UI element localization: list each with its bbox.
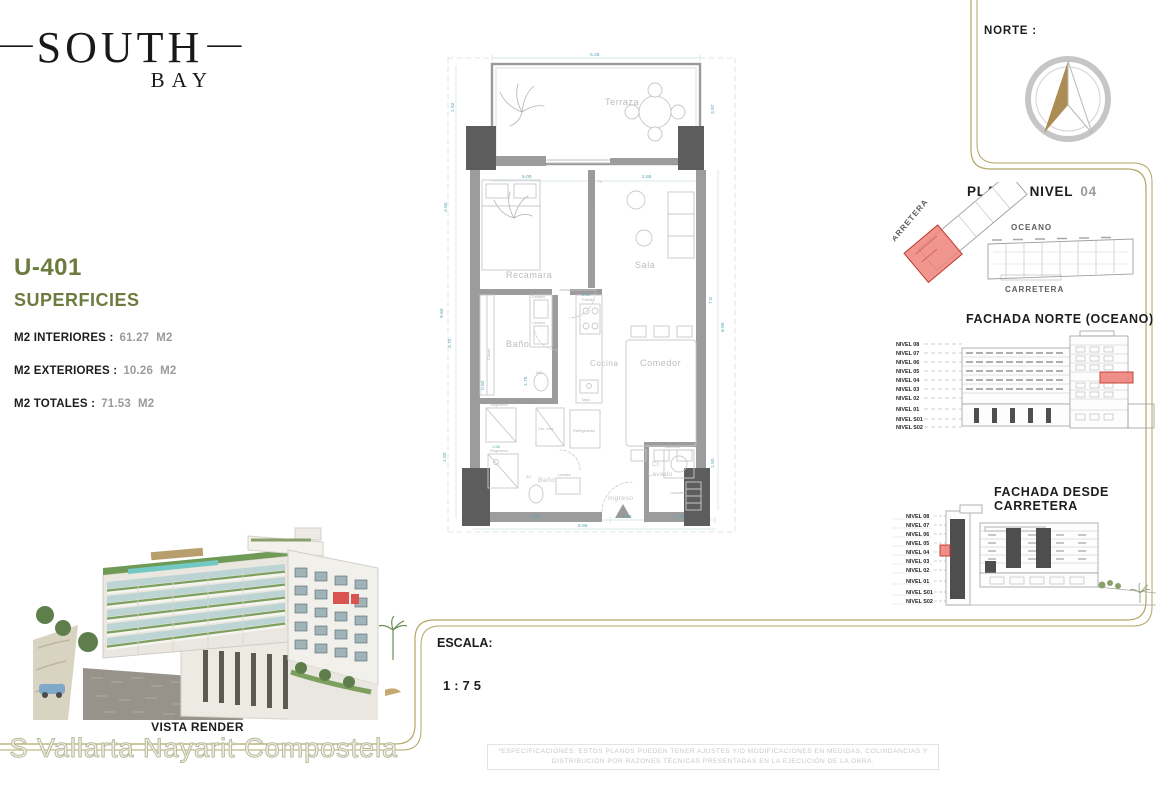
- m2-totales-value: 71.53: [101, 398, 131, 410]
- m2-exteriores-row: M2 EXTERIORES :10.26M2: [14, 365, 244, 377]
- fn-nivel-01: NIVEL 01: [896, 407, 919, 413]
- dim-l2: 4.50: [443, 202, 449, 212]
- bano1-label: Baño: [506, 339, 529, 349]
- dim-r2: 7.6: [708, 297, 714, 304]
- dim-158: 1.58: [492, 444, 501, 449]
- logo-dash-right: —: [207, 27, 241, 61]
- fn-nivel-08: NIVEL 08: [896, 342, 919, 348]
- norte-label: NORTE :: [984, 25, 1037, 37]
- dim-top: 5.28: [590, 52, 600, 58]
- parrilla-label: Parrilla: [582, 297, 595, 302]
- fn-nivel-s01: NIVEL S01: [896, 417, 923, 423]
- dim-parrilla: 0.90: [582, 292, 591, 297]
- compass-icon: [1018, 47, 1118, 147]
- m2-totales-unit: M2: [138, 398, 154, 410]
- m2-totales-label: M2 TOTALES :: [14, 398, 95, 410]
- compass-needle-outline: [1068, 61, 1092, 133]
- wc1-label: WC: [536, 370, 543, 375]
- m2-exteriores-label: M2 EXTERIORES :: [14, 365, 117, 377]
- dim-b3: 1.26: [675, 514, 685, 520]
- lavabo2-label: Lavabo: [532, 320, 546, 325]
- building-strip: [988, 238, 1133, 281]
- kitchen-fixtures: [576, 295, 602, 403]
- fachada-norte-elevation: NIVEL 08 NIVEL 07 NIVEL 06 NIVEL 05 NIVE…: [888, 330, 1160, 432]
- plan-sheet: — SOUTH — BAY U-401 SUPERFICIES M2 INTER…: [0, 0, 1170, 785]
- fn-nivel-04: NIVEL 04: [896, 378, 919, 384]
- cto-inst-label: Cto. Inst.: [538, 426, 554, 431]
- lavabo1-label: Lavabo: [532, 294, 546, 299]
- building-render-illustration: [33, 520, 408, 720]
- m2-interiores-value: 61.27: [119, 332, 149, 344]
- bano2-label: Baño: [538, 477, 555, 484]
- lav-sec-label: Lav./Sec.: [665, 444, 681, 449]
- dim-175: 1.75: [523, 376, 529, 386]
- fachada-carretera-highlight: [940, 545, 950, 556]
- regadera2-label: Regadera: [490, 402, 508, 407]
- dim-r4: 1.50: [710, 458, 716, 468]
- fachada-norte-title: FACHADA NORTE (OCEANO): [966, 312, 1154, 326]
- recamara-label: Recamara: [506, 270, 552, 280]
- sala-label: Sala: [635, 260, 655, 270]
- bathroom2-fixtures: [488, 454, 580, 503]
- compass-needle-filled: [1044, 61, 1068, 133]
- lavabo3-label: Lavabo: [558, 472, 572, 477]
- cl-lavado-label-2: Lavado: [648, 471, 673, 478]
- m2-interiores-label: M2 INTERIORES :: [14, 332, 113, 344]
- dim-r3: 8.55: [720, 322, 726, 332]
- fn-nivel-02: NIVEL 02: [896, 396, 919, 402]
- m2-interiores-unit: M2: [156, 332, 172, 344]
- cl-lavado-label-1: Cl.: [652, 461, 662, 468]
- dim-sala-w: 2.65: [642, 174, 652, 180]
- fachada-norte-highlight: [1100, 372, 1133, 383]
- terraza-label: Terraza: [605, 97, 639, 107]
- ingreso-label: Ingreso: [608, 495, 633, 502]
- palm-tree: [379, 616, 407, 660]
- dim-l3: 9.60: [439, 308, 445, 318]
- ac-label: AC: [526, 474, 532, 479]
- bed-illustration: [482, 180, 540, 270]
- m2-totales-row: M2 TOTALES :71.53M2: [14, 398, 244, 410]
- fn-nivel-07: NIVEL 07: [896, 351, 919, 357]
- tarja-label: Tarja: [581, 397, 590, 402]
- dim-l1: 1.52: [450, 102, 456, 112]
- terrain: [33, 625, 78, 720]
- dim-recamara-w: 5.00: [522, 174, 532, 180]
- render-highlight-unit: [333, 592, 349, 604]
- dim-l4: 3.70: [447, 338, 453, 348]
- south-bay-logo: — SOUTH — BAY: [10, 26, 230, 93]
- cocina-label: Cocina: [590, 359, 619, 368]
- dim-l6: 0.60: [480, 380, 486, 390]
- logo-dash-left: —: [0, 27, 33, 61]
- oceano-label: OCEANO: [1011, 223, 1052, 232]
- fachada-carretera-building: [940, 505, 1156, 605]
- disclaimer-note: *ESPECIFICACIONES: ESTOS PLANOS PUEDEN T…: [487, 744, 939, 770]
- structural-columns: [462, 126, 710, 526]
- dim-r1: 3.97: [710, 104, 716, 114]
- fachada-carretera-elevation: NIVEL 08 NIVEL 07 NIVEL 06 NIVEL 05 NIVE…: [888, 503, 1160, 608]
- dim-b2: 1.20: [622, 514, 632, 520]
- superficies-title: SUPERFICIES: [14, 290, 244, 311]
- carretera-bottom-label: CARRETERA: [1005, 285, 1064, 294]
- unit-id: U-401: [14, 254, 244, 282]
- m2-exteriores-unit: M2: [160, 365, 176, 377]
- dining-illustration: [626, 326, 696, 461]
- comedor-label: Comedor: [640, 358, 681, 368]
- escala-value: 1:75: [443, 678, 485, 693]
- m2-interiores-row: M2 INTERIORES :61.27M2: [14, 332, 244, 344]
- fn-nivel-06: NIVEL 06: [896, 360, 919, 366]
- fachada-norte-building: [962, 331, 1154, 428]
- fn-nivel-03: NIVEL 03: [896, 387, 919, 393]
- fachada-carretera-levels: NIVEL 08 NIVEL 07 NIVEL 06 NIVEL 05 NIVE…: [892, 514, 946, 605]
- tv-label: TV: [597, 179, 602, 184]
- planta-nivel-diagram: OCEANO CARRETERA CARRETERA: [893, 182, 1145, 294]
- fn-nivel-05: NIVEL 05: [896, 369, 919, 375]
- floorplan-drawing: Terraza Recamara Sala Baño Cocina Comedo…: [430, 50, 760, 540]
- logo-title: SOUTH: [37, 26, 204, 70]
- dim-b-total: 6.65: [578, 523, 588, 529]
- dim-l5: 1.50: [442, 452, 448, 462]
- unit-info: U-401 SUPERFICIES M2 INTERIORES :61.27M2…: [14, 254, 244, 410]
- sofa-illustration: [591, 176, 694, 258]
- dim-b1: 4.15: [530, 514, 540, 520]
- lavadero-label: Lavadero: [670, 490, 687, 495]
- fachada-norte-levels: NIVEL 08 NIVEL 07 NIVEL 06 NIVEL 05 NIVE…: [896, 342, 962, 431]
- vista-render-caption: VISTA RENDER: [130, 720, 265, 734]
- escala-label: ESCALA:: [437, 636, 493, 650]
- fn-nivel-s02: NIVEL S02: [896, 425, 923, 431]
- refrigerador-label: Refrigerador: [573, 428, 596, 433]
- watermark: l S Vallarta Nayarit Compostela: [0, 733, 398, 764]
- m2-exteriores-value: 10.26: [123, 365, 153, 377]
- closet-label: Closet: [486, 348, 491, 360]
